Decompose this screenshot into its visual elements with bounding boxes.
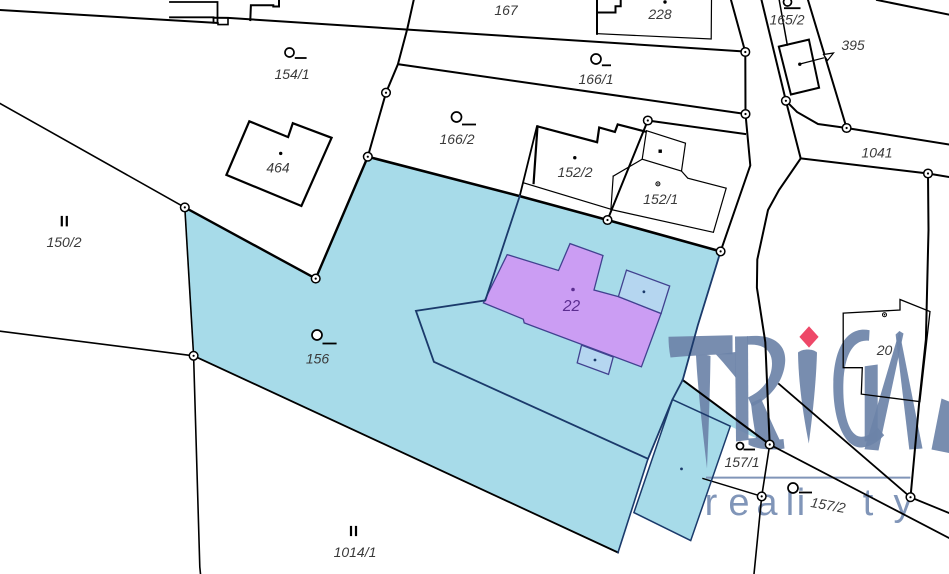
svg-text:r: r [705, 482, 718, 524]
svg-text:20: 20 [876, 342, 893, 358]
svg-text:166/2: 166/2 [439, 131, 474, 147]
svg-text:e: e [728, 482, 749, 524]
svg-text:1041: 1041 [861, 145, 892, 161]
svg-text:167: 167 [494, 2, 519, 18]
svg-text:150/2: 150/2 [46, 234, 81, 250]
svg-text:157/1: 157/1 [724, 454, 759, 470]
svg-text:395: 395 [841, 37, 865, 53]
svg-text:464: 464 [266, 160, 290, 176]
svg-text:157/2: 157/2 [810, 494, 847, 516]
svg-text:152/2: 152/2 [557, 164, 592, 180]
svg-text:228: 228 [647, 6, 672, 22]
svg-text:152/1: 152/1 [643, 191, 678, 207]
svg-text:22: 22 [562, 298, 581, 315]
svg-text:1014/1: 1014/1 [334, 544, 377, 560]
svg-text:t: t [863, 482, 874, 524]
svg-text:166/1: 166/1 [578, 71, 613, 87]
svg-text:165/2: 165/2 [769, 12, 804, 28]
svg-text:156: 156 [306, 351, 330, 367]
svg-text:154/1: 154/1 [274, 66, 309, 82]
